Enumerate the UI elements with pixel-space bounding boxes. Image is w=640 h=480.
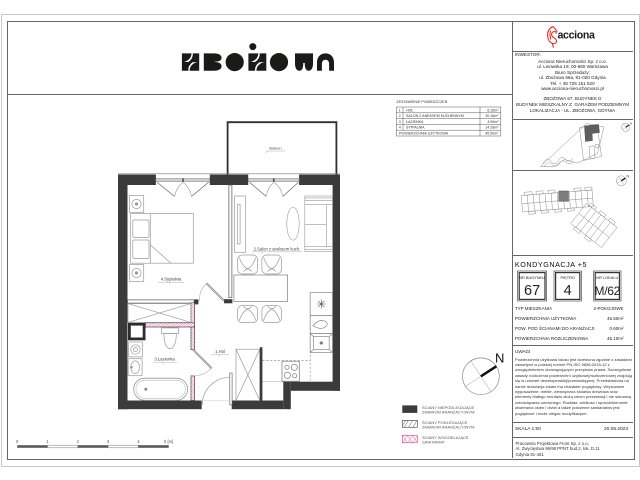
svg-text:acciona: acciona <box>558 30 595 42</box>
